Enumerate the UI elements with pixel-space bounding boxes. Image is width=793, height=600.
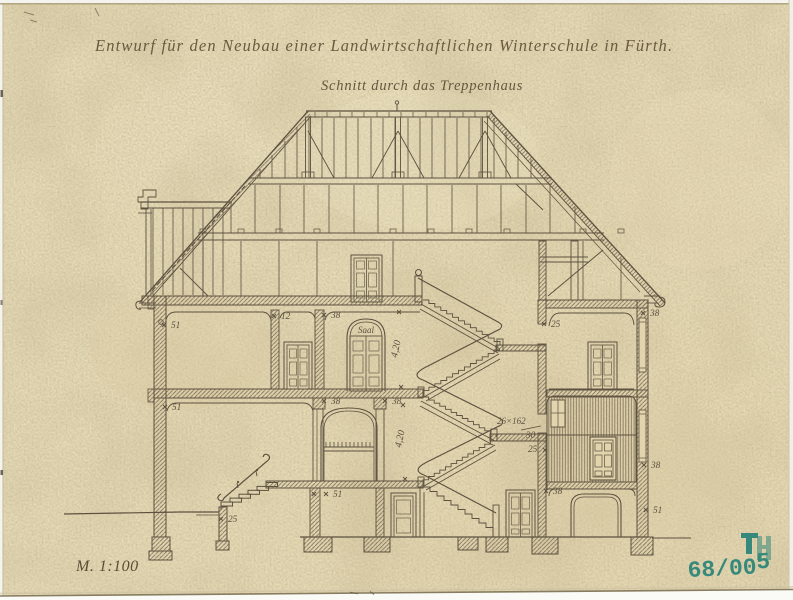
- svg-text:26×162: 26×162: [497, 416, 526, 426]
- svg-text:M. 1:100: M. 1:100: [75, 558, 139, 575]
- svg-text:30: 30: [525, 431, 536, 441]
- svg-text:Schnitt durch das Treppenhaus: Schnitt durch das Treppenhaus: [321, 78, 523, 94]
- svg-text:12: 12: [281, 312, 291, 322]
- svg-text:Saal: Saal: [358, 325, 375, 335]
- svg-text:25: 25: [228, 515, 238, 525]
- svg-text:25: 25: [528, 445, 538, 455]
- svg-text:38: 38: [552, 487, 563, 497]
- svg-text:38: 38: [330, 397, 341, 407]
- svg-text:38: 38: [330, 311, 341, 321]
- svg-text:38: 38: [649, 309, 660, 319]
- svg-text:51: 51: [653, 506, 662, 516]
- svg-text:Entwurf für den Neubau einer L: Entwurf für den Neubau einer Landwirtsch…: [94, 36, 673, 55]
- svg-text:25: 25: [551, 320, 561, 330]
- svg-text:51: 51: [171, 321, 180, 331]
- svg-text:51: 51: [333, 490, 342, 500]
- svg-text:38: 38: [650, 461, 661, 471]
- svg-text:51: 51: [172, 403, 181, 413]
- svg-text:38: 38: [391, 397, 402, 407]
